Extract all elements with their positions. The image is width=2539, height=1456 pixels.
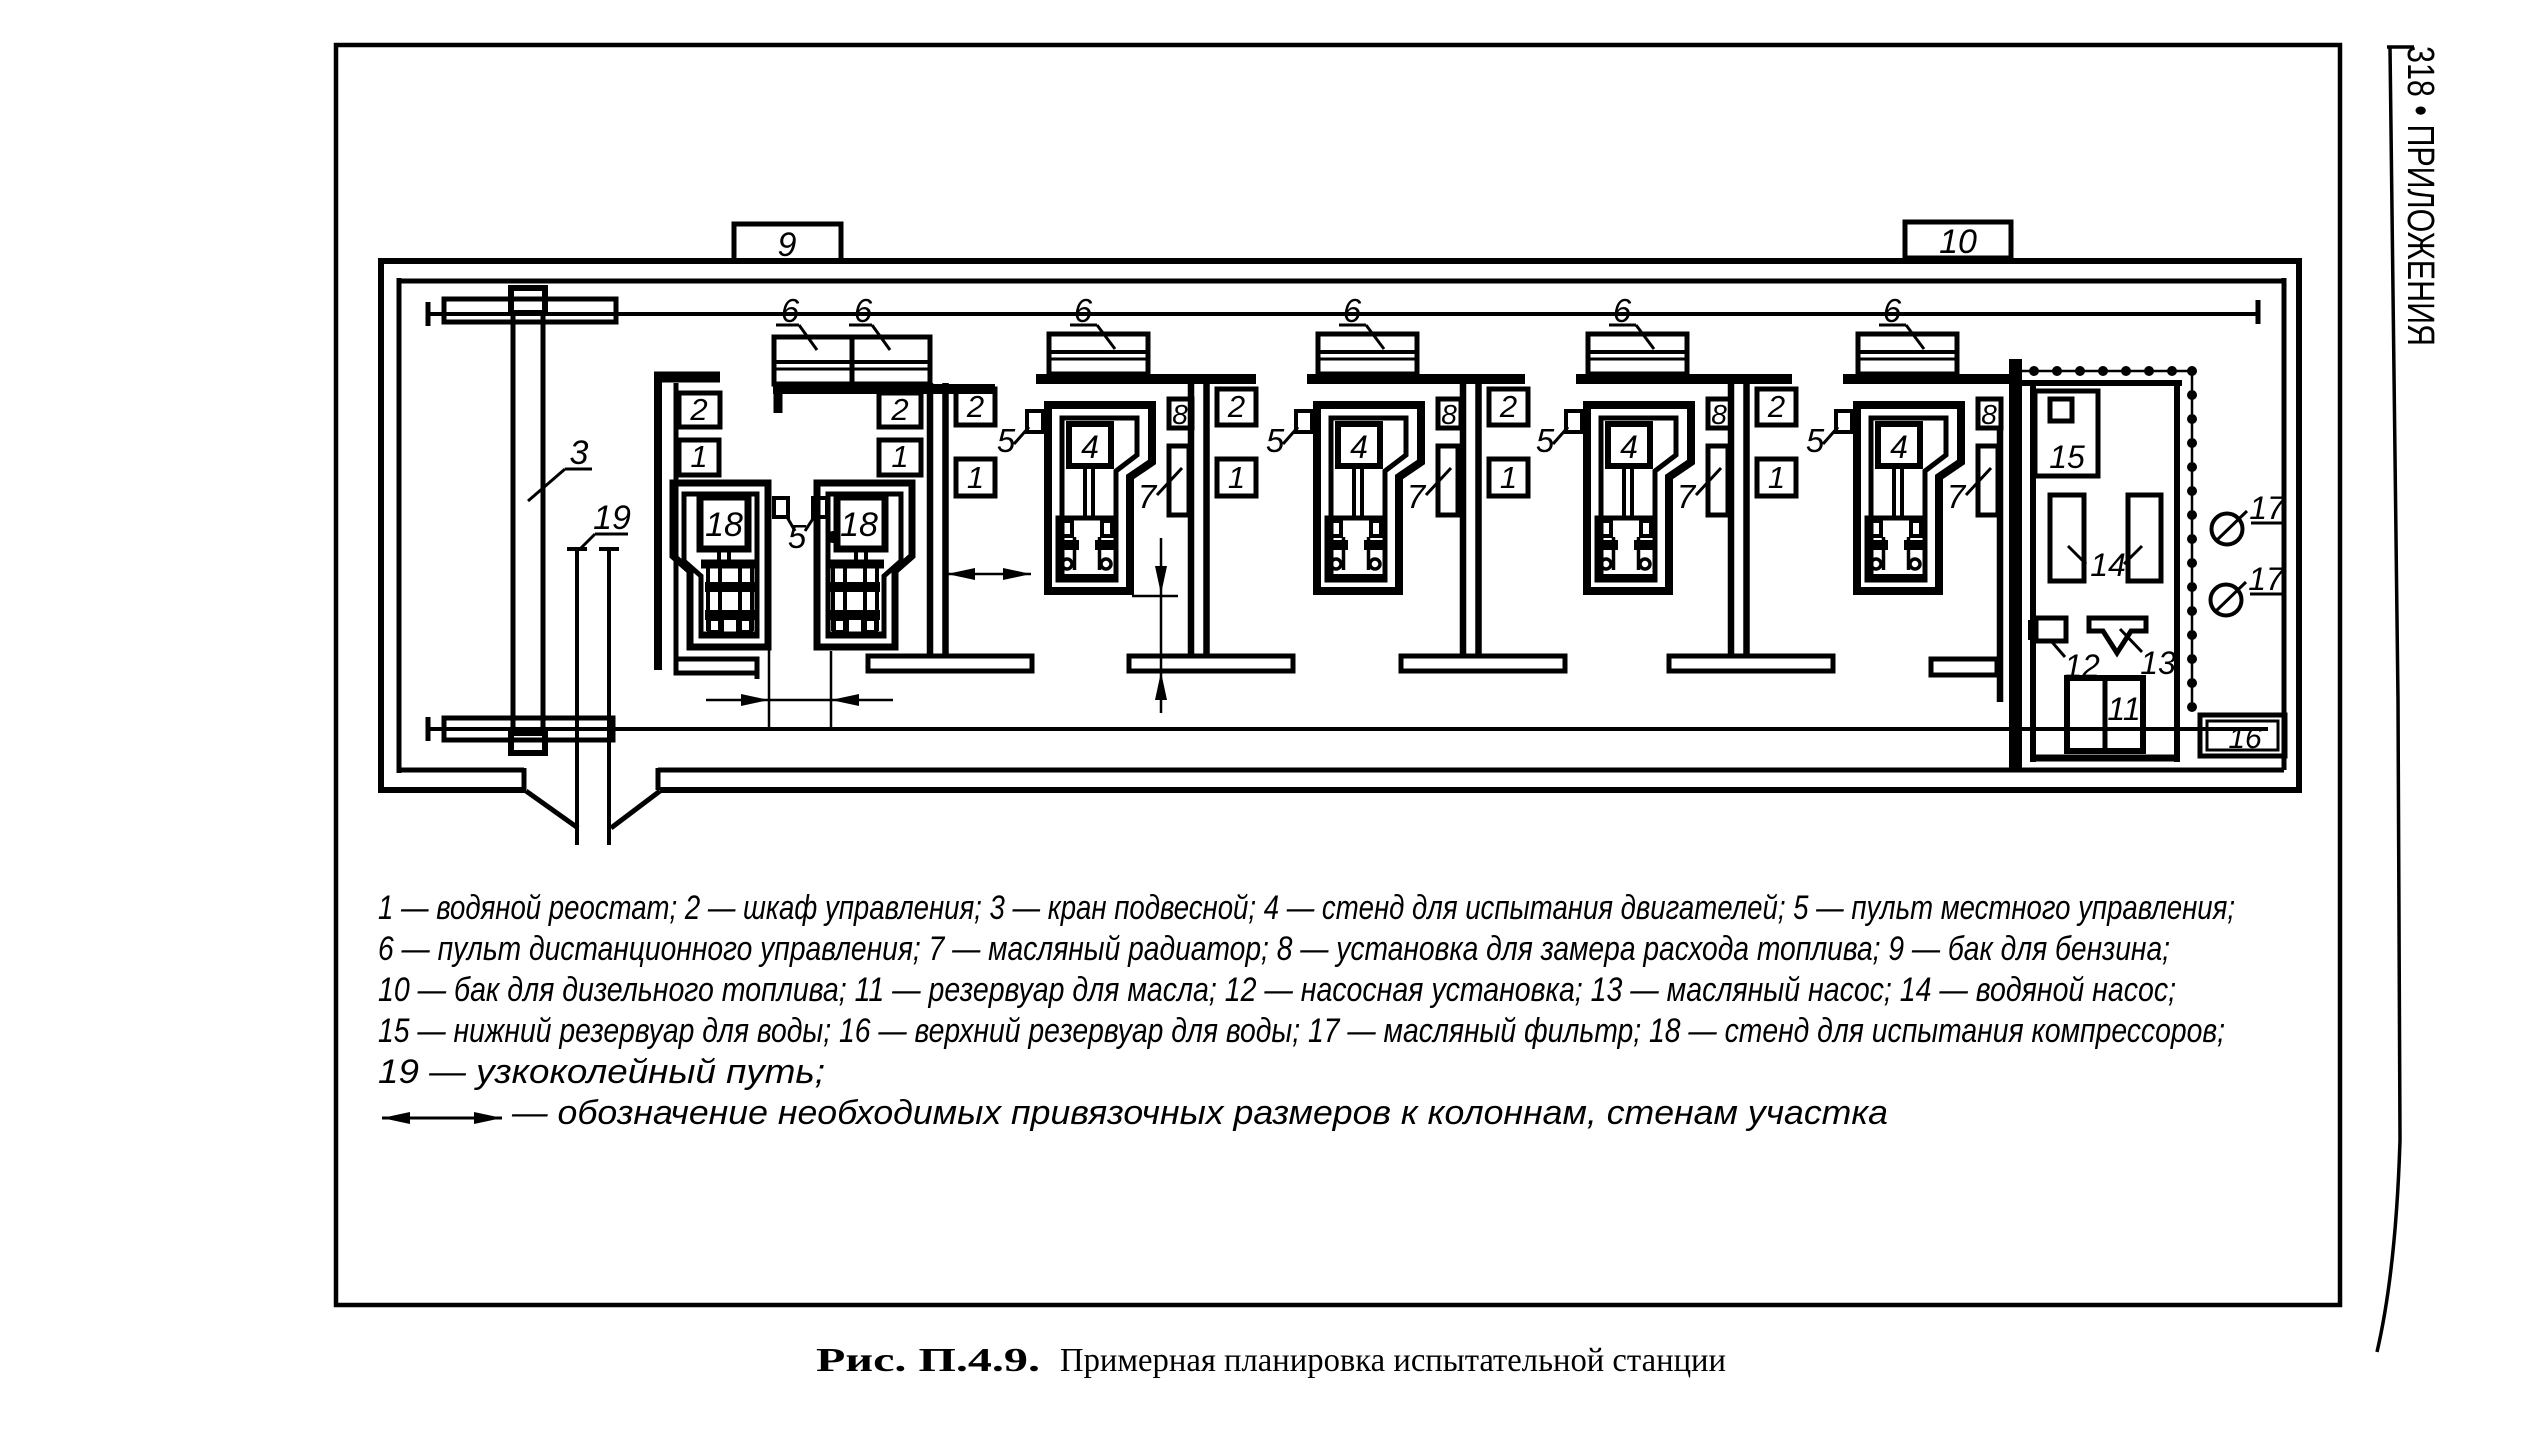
- svg-text:17: 17: [2249, 490, 2286, 526]
- svg-text:1 — водяной реостат; 2 — шкаф: 1 — водяной реостат; 2 — шкаф управления…: [378, 889, 2235, 927]
- svg-text:7: 7: [1947, 478, 1967, 515]
- svg-text:318 • ПРИЛОЖЕНИЯ: 318 • ПРИЛОЖЕНИЯ: [2399, 46, 2441, 346]
- svg-text:19 — узкоколейный путь;: 19 — узкоколейный путь;: [378, 1053, 825, 1091]
- svg-text:7: 7: [1407, 478, 1427, 515]
- svg-text:8: 8: [1711, 399, 1727, 430]
- svg-text:5: 5: [1266, 422, 1285, 459]
- svg-text:6: 6: [1343, 292, 1362, 329]
- svg-text:5: 5: [1536, 422, 1555, 459]
- svg-text:6 — пульт дистанционного управ: 6 — пульт дистанционного управления; 7 —…: [378, 930, 2170, 968]
- svg-text:6: 6: [781, 292, 800, 329]
- svg-text:8: 8: [1441, 399, 1457, 430]
- svg-text:3: 3: [570, 434, 589, 472]
- svg-text:6: 6: [1074, 292, 1093, 329]
- svg-text:1: 1: [891, 439, 908, 474]
- svg-text:11: 11: [2107, 691, 2140, 727]
- svg-text:10: 10: [1939, 223, 1977, 261]
- svg-text:5: 5: [1806, 422, 1825, 459]
- svg-text:5: 5: [997, 422, 1016, 459]
- svg-text:— обозначение необходимых прив: — обозначение необходимых привязочных ра…: [511, 1094, 1888, 1132]
- svg-text:1: 1: [690, 439, 707, 474]
- svg-text:15 — нижний резервуар для воды: 15 — нижний резервуар для воды; 16 — вер…: [378, 1012, 2225, 1050]
- svg-text:8: 8: [1172, 399, 1188, 430]
- svg-text:8: 8: [1981, 399, 1997, 430]
- svg-text:2: 2: [890, 392, 908, 427]
- svg-text:6: 6: [1613, 292, 1632, 329]
- svg-text:9: 9: [778, 226, 797, 264]
- svg-text:6: 6: [854, 292, 873, 329]
- svg-text:18: 18: [705, 506, 743, 544]
- svg-text:Рис. П.4.9.: Рис. П.4.9.: [816, 1342, 1040, 1379]
- svg-text:2: 2: [689, 392, 707, 427]
- svg-text:19: 19: [593, 499, 631, 537]
- svg-text:7: 7: [1138, 478, 1158, 515]
- svg-text:10 — бак для дизельного топлив: 10 — бак для дизельного топлива; 11 — ре…: [378, 971, 2176, 1009]
- svg-text:15: 15: [2049, 439, 2085, 475]
- svg-text:17: 17: [2248, 561, 2285, 597]
- svg-text:18: 18: [840, 506, 878, 544]
- svg-text:16: 16: [2228, 722, 2262, 755]
- svg-text:Примерная планировка испытател: Примерная планировка испытательной станц…: [1060, 1342, 1726, 1379]
- svg-text:14: 14: [2090, 547, 2126, 583]
- svg-text:7: 7: [1677, 478, 1697, 515]
- svg-text:6: 6: [1883, 292, 1902, 329]
